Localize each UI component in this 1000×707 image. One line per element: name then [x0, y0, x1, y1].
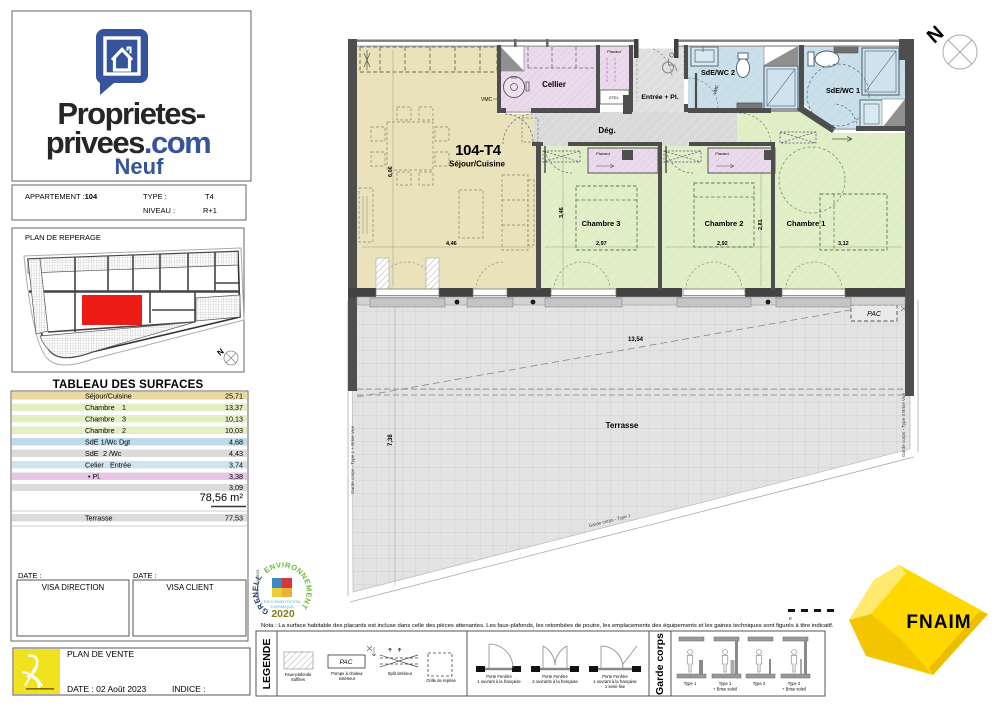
svg-text:Chambre 2: Chambre 2 [705, 219, 744, 228]
svg-text:DATE :: DATE : [133, 571, 157, 580]
svg-text:2 ouvrants à la française: 2 ouvrants à la française [532, 679, 578, 684]
svg-text:2020: 2020 [271, 608, 295, 620]
svg-text:SdE/WC 2: SdE/WC 2 [701, 68, 735, 77]
svg-text:3,09: 3,09 [229, 483, 243, 492]
svg-text:Séjour/Cuisine: Séjour/Cuisine [85, 392, 132, 401]
svg-text:4,43: 4,43 [229, 449, 243, 458]
svg-text:4,68: 4,68 [229, 438, 243, 447]
svg-text:25,71: 25,71 [225, 392, 243, 401]
svg-text:Dég.: Dég. [598, 126, 615, 135]
svg-text:7,38: 7,38 [388, 434, 394, 446]
svg-text:ETEL: ETEL [609, 96, 619, 100]
svg-text:13,37: 13,37 [225, 403, 243, 412]
svg-text:PLAN DE VENTE: PLAN DE VENTE [67, 649, 134, 659]
svg-text:APPARTEMENT :104: APPARTEMENT :104 [25, 192, 98, 201]
svg-text:Chambre: Chambre [85, 403, 115, 412]
svg-text:VISA DIRECTION: VISA DIRECTION [42, 583, 104, 592]
svg-text:6,06: 6,06 [388, 166, 394, 177]
svg-text:DATE : 02 Août 2023: DATE : 02 Août 2023 [67, 684, 146, 694]
svg-text:SdE: SdE [85, 449, 99, 458]
svg-text:Garde corps - Type 3 Brise Vue: Garde corps - Type 3 Brise Vue [901, 393, 906, 458]
svg-text:3,12: 3,12 [838, 241, 849, 247]
svg-text:FNAIM: FNAIM [906, 612, 971, 633]
svg-text:Soffites: Soffites [291, 677, 305, 682]
svg-text:Chambre 1: Chambre 1 [787, 219, 826, 228]
svg-text:Placard: Placard [607, 49, 621, 54]
svg-text:• Pl.: • Pl. [88, 472, 101, 481]
svg-text:Garde corps: Garde corps [654, 633, 666, 695]
svg-text:3,38: 3,38 [229, 472, 243, 481]
svg-text:Modifié le 02/08/23: Modifié le 02/08/23 [256, 570, 260, 600]
svg-text:104-T4: 104-T4 [455, 142, 502, 159]
svg-text:Grille de reprise: Grille de reprise [426, 678, 456, 683]
svg-text:10,03: 10,03 [225, 426, 243, 435]
svg-text:3,46: 3,46 [559, 207, 565, 218]
svg-text:Chambre: Chambre [85, 415, 115, 424]
svg-text:Garde corps - Type 1 + Brise V: Garde corps - Type 1 + Brise Vue [350, 426, 355, 494]
svg-text:PAC: PAC [340, 659, 353, 666]
svg-text:Type 2: Type 2 [753, 681, 766, 686]
svg-text:SdE 1/Wc Dgt: SdE 1/Wc Dgt [85, 438, 130, 447]
svg-text:Entrée: Entrée [110, 461, 131, 470]
svg-text:Nota : La surface habitable de: Nota : La surface habitable des placards… [261, 623, 834, 629]
svg-text:Placard: Placard [596, 151, 610, 156]
svg-text:Type 1: Type 1 [719, 681, 732, 686]
svg-text:Entrée + Pl.: Entrée + Pl. [641, 94, 678, 101]
svg-text:Chambre: Chambre [85, 426, 115, 435]
svg-text:extérieur: extérieur [339, 676, 356, 681]
svg-text:2,92: 2,92 [717, 241, 728, 247]
svg-text:Type 2: Type 2 [788, 681, 801, 686]
svg-text:Séjour/Cuisine: Séjour/Cuisine [449, 160, 506, 169]
svg-text:NIVEAU :: NIVEAU : [143, 206, 175, 215]
svg-text:Type 1: Type 1 [684, 681, 697, 686]
svg-text:2: 2 [122, 426, 126, 435]
svg-text:Chambre 3: Chambre 3 [582, 219, 621, 228]
svg-text:TYPE :: TYPE : [143, 192, 167, 201]
svg-text:Terrasse: Terrasse [606, 421, 639, 430]
svg-text:PAC: PAC [867, 311, 882, 318]
svg-text:10,13: 10,13 [225, 415, 243, 424]
svg-text:SdE/WC 1: SdE/WC 1 [826, 86, 860, 95]
svg-text:VMC: VMC [481, 97, 493, 103]
svg-text:VISA CLIENT: VISA CLIENT [166, 583, 213, 592]
svg-text:R+1: R+1 [203, 206, 217, 215]
svg-text:4,46: 4,46 [446, 241, 457, 247]
svg-text:Placard: Placard [715, 151, 729, 156]
svg-text:3,74: 3,74 [229, 461, 243, 470]
svg-text:Split intérieur: Split intérieur [388, 671, 413, 676]
svg-text:INDICE :: INDICE : [172, 684, 206, 694]
svg-text:1: 1 [122, 403, 126, 412]
svg-text:Celier: Celier [85, 461, 104, 470]
svg-text:Cellier: Cellier [542, 80, 566, 89]
svg-text:2,81: 2,81 [758, 219, 764, 230]
svg-text:3: 3 [122, 415, 126, 424]
svg-text:Terrasse: Terrasse [85, 514, 113, 523]
svg-text:1 ouvrant à la française: 1 ouvrant à la française [477, 679, 521, 684]
svg-text:PLAN DE REPERAGE: PLAN DE REPERAGE [25, 233, 101, 242]
svg-text:2,97: 2,97 [596, 241, 607, 247]
svg-text:TABLEAU DES SURFACES: TABLEAU DES SURFACES [53, 379, 204, 391]
svg-text:77,53: 77,53 [225, 514, 243, 523]
svg-text:1 semi-fixe: 1 semi-fixe [605, 684, 626, 689]
svg-text:Neuf: Neuf [115, 154, 165, 179]
svg-text:LEGENDE: LEGENDE [261, 639, 273, 690]
svg-text:78,56 m²: 78,56 m² [200, 492, 244, 504]
svg-text:DATE :: DATE : [18, 571, 42, 580]
svg-text:2 /Wc: 2 /Wc [103, 449, 122, 458]
svg-text:+ Brise soleil: + Brise soleil [782, 687, 806, 692]
svg-text:T4: T4 [205, 192, 214, 201]
svg-text:+ Brise soleil: + Brise soleil [713, 687, 737, 692]
svg-text:13,54: 13,54 [628, 337, 644, 343]
